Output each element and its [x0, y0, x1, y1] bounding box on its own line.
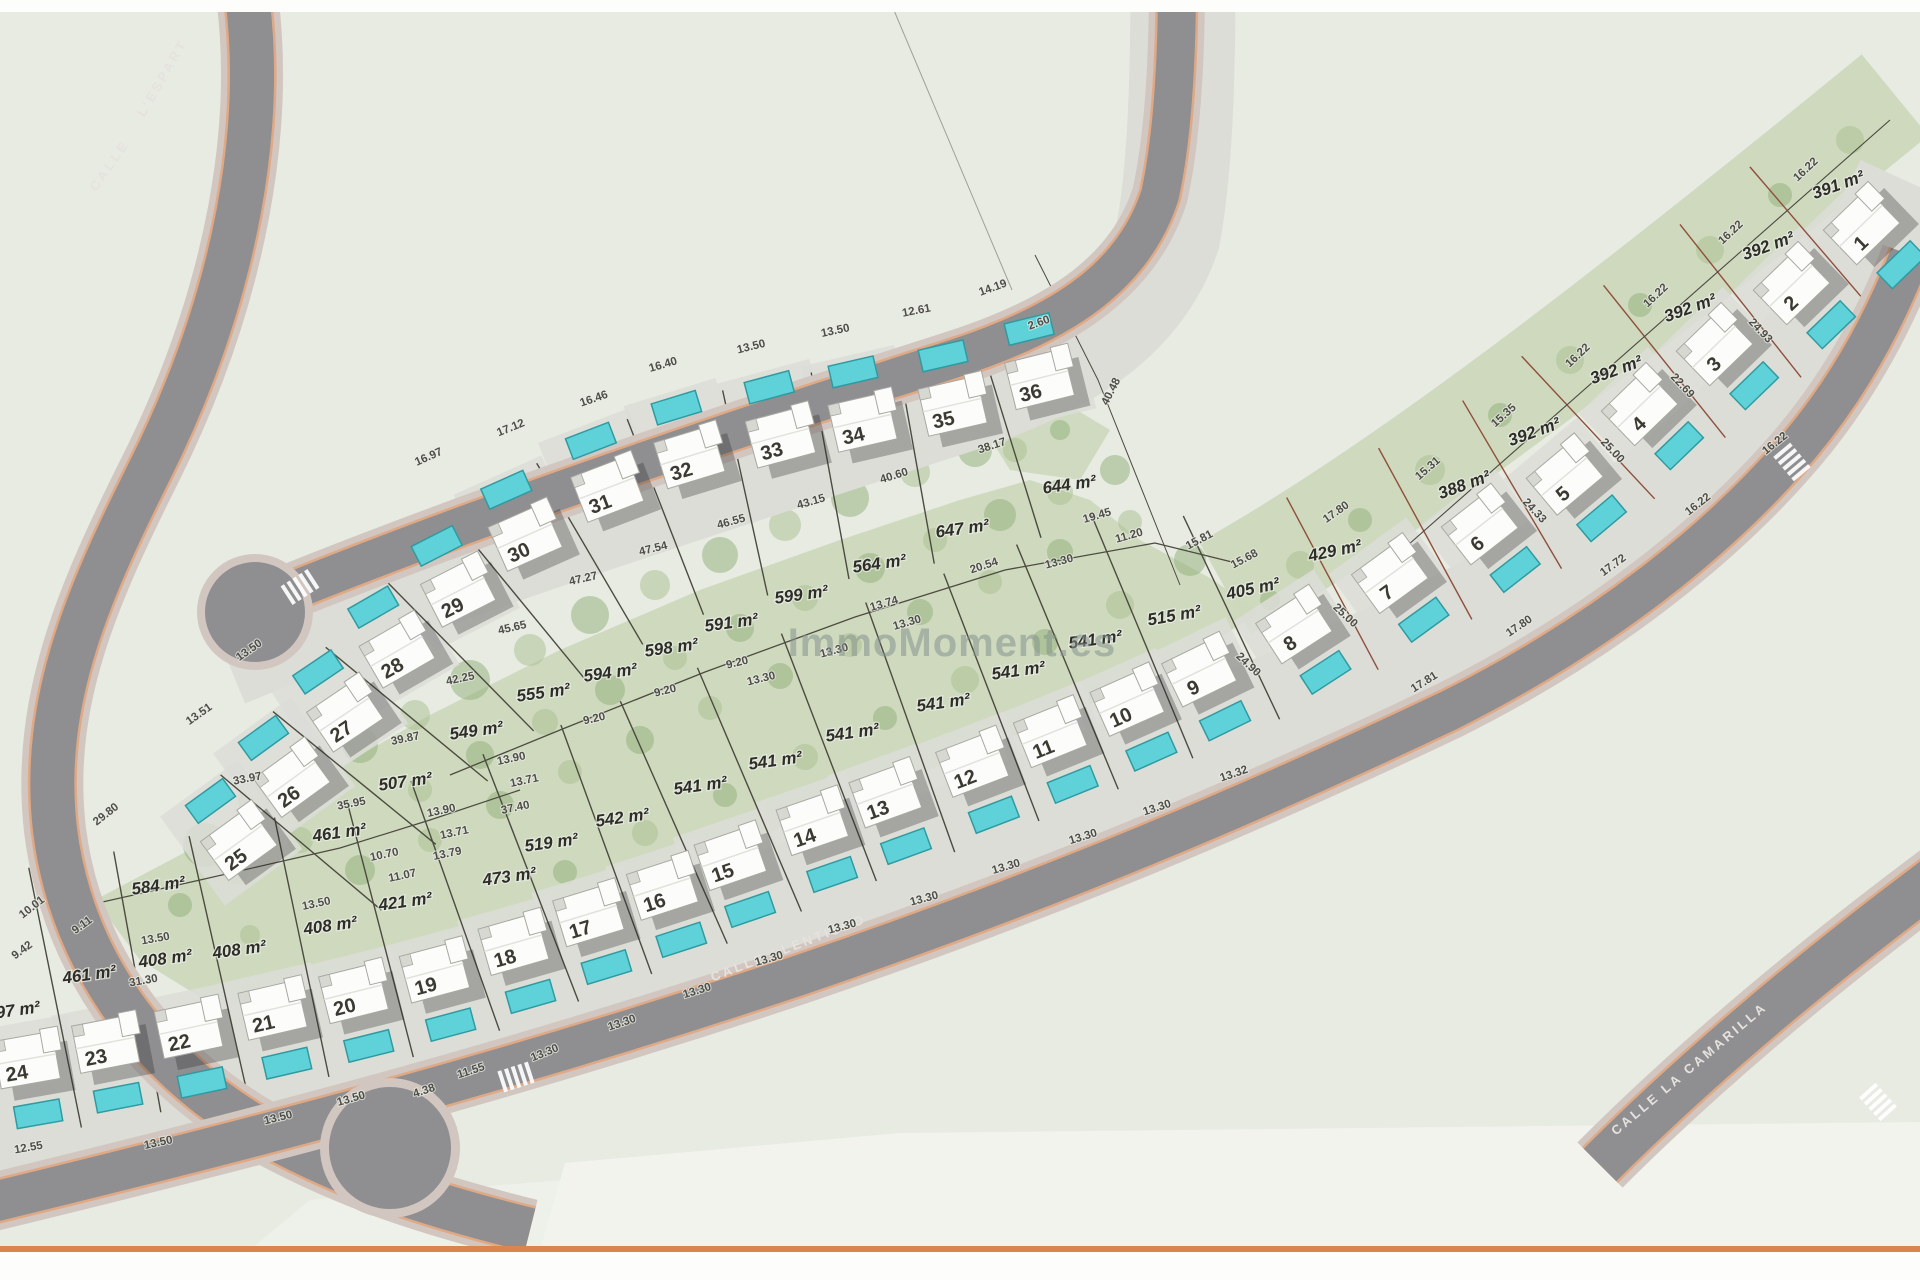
- orange-divider: [0, 1246, 1920, 1252]
- house-chimney: [918, 387, 931, 400]
- tree: [532, 709, 558, 735]
- house-chimney: [1005, 360, 1018, 373]
- house-chimney: [154, 1010, 167, 1023]
- plot-number: 22: [166, 1030, 192, 1056]
- tree: [1050, 420, 1070, 440]
- tree: [1106, 591, 1134, 619]
- house-garage: [118, 1010, 140, 1037]
- house-chimney: [238, 991, 251, 1004]
- house-chimney: [828, 403, 841, 416]
- house-chimney: [72, 1024, 85, 1037]
- tree: [168, 893, 192, 917]
- house-chimney: [745, 419, 758, 432]
- site-plan: CALLEL'ESPARTCALLE LLENTISCOCALLE LA CAM…: [0, 0, 1920, 1280]
- tree: [702, 537, 738, 573]
- tree: [640, 570, 670, 600]
- tree: [978, 570, 1002, 594]
- plot-number: 23: [83, 1045, 109, 1071]
- tree: [514, 634, 546, 666]
- house-garage: [40, 1026, 62, 1053]
- bottom-margin: [0, 1252, 1920, 1280]
- top-margin: [0, 0, 1920, 12]
- tree: [1003, 438, 1027, 462]
- tree: [1768, 183, 1792, 207]
- tree: [626, 726, 654, 754]
- tree: [1100, 455, 1130, 485]
- watermark: ImmoMoment.es: [788, 621, 1117, 665]
- site-plan-svg: CALLEL'ESPARTCALLE LLENTISCOCALLE LA CAM…: [0, 0, 1920, 1280]
- house-chimney: [319, 974, 332, 987]
- tree: [466, 741, 494, 769]
- house-chimney: [399, 954, 412, 967]
- tree: [1836, 126, 1864, 154]
- house-chimney: [478, 926, 492, 940]
- tree: [571, 596, 609, 634]
- tree: [1348, 508, 1372, 532]
